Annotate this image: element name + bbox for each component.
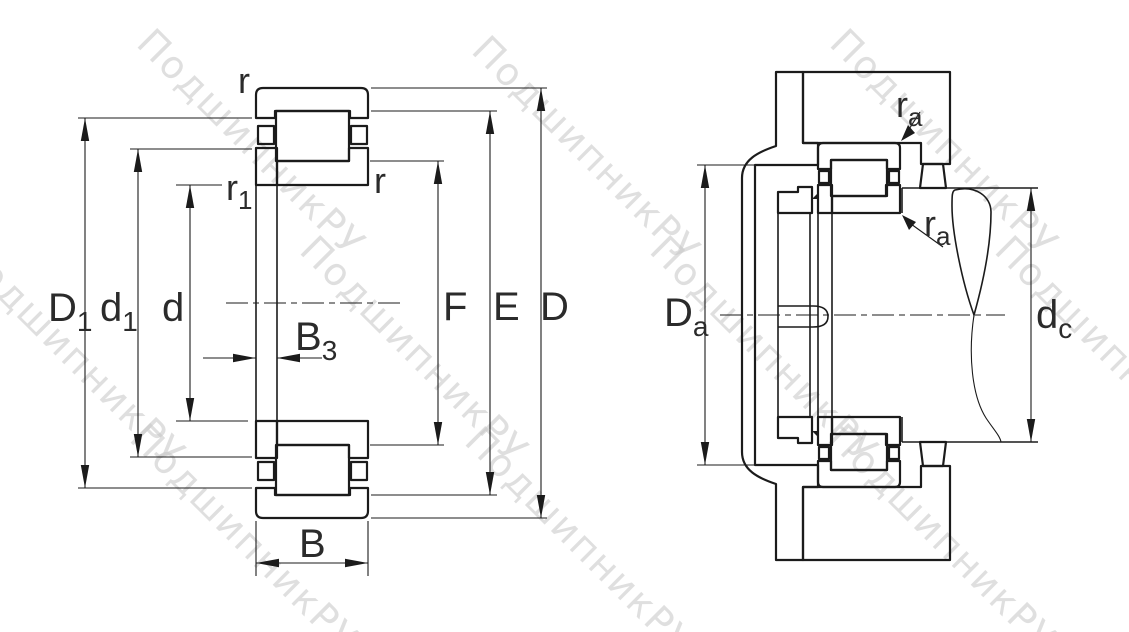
outer-ring-lower <box>256 488 368 518</box>
roller-upper-right <box>831 160 887 196</box>
label-d1: d1 <box>100 286 138 337</box>
watermark: ПодшипникРУ <box>457 418 702 632</box>
label-D: D <box>540 285 569 329</box>
label-r1: r1 <box>226 167 252 215</box>
label-D1: D1 <box>48 286 92 337</box>
dimension-arrow <box>81 465 89 488</box>
center-hole <box>778 306 828 327</box>
dimension-arrow <box>345 559 368 567</box>
label-r-top: r <box>238 60 250 101</box>
cage-lower-left <box>258 462 274 480</box>
cage-lower-right <box>351 462 367 480</box>
label-F: F <box>443 285 467 329</box>
cage-upper-right <box>351 126 367 144</box>
dimension-arrow <box>134 149 142 172</box>
dimension-arrow <box>186 185 194 208</box>
label-r-right: r <box>374 160 386 201</box>
label-E: E <box>493 285 520 329</box>
dimension-arrow <box>81 118 89 141</box>
outer-ring-upper <box>256 88 368 118</box>
watermark: ПодшипникРУ <box>122 415 367 632</box>
dimension-arrow <box>701 442 709 465</box>
dimension-arrow <box>1027 419 1035 442</box>
loose-rib-washer-lower <box>256 421 277 458</box>
cage-upper-right-left <box>819 171 829 183</box>
dimension-arrow <box>486 111 494 134</box>
bearing-drawing-svg: ПодшипникРУ ПодшипникРУ ПодшипникРУ Подш… <box>0 0 1129 632</box>
watermark: ПодшипникРУ <box>129 20 374 265</box>
leader-arrow-ra-lower <box>902 215 916 230</box>
seal-ring-lower <box>920 442 946 466</box>
labyrinth-ring-upper <box>778 187 812 213</box>
label-B: B <box>299 522 326 566</box>
shaft-break-line-lower <box>971 315 1001 442</box>
dimension-arrow <box>434 422 442 445</box>
dimension-arrow <box>186 398 194 421</box>
watermark: ПодшипникРУ <box>820 415 1065 632</box>
left-view-bearing-cross-section: r r1 r D1 d1 d B3 B F E D <box>48 60 569 576</box>
roller-lower <box>276 445 349 495</box>
watermark: ПодшипникРУ <box>987 227 1129 472</box>
inner-ring-lower <box>277 421 368 458</box>
label-ra-lower: ra <box>924 203 951 251</box>
inner-ring-upper-right <box>832 185 900 213</box>
label-d: d <box>162 286 184 330</box>
dimension-arrow <box>701 165 709 188</box>
dimension-arrow <box>233 354 256 362</box>
technical-drawing-canvas: ПодшипникРУ ПодшипникРУ ПодшипникРУ Подш… <box>0 0 1129 632</box>
dimension-arrow <box>434 161 442 184</box>
cage-upper-right-right <box>889 171 899 183</box>
label-B3: B3 <box>295 315 337 366</box>
